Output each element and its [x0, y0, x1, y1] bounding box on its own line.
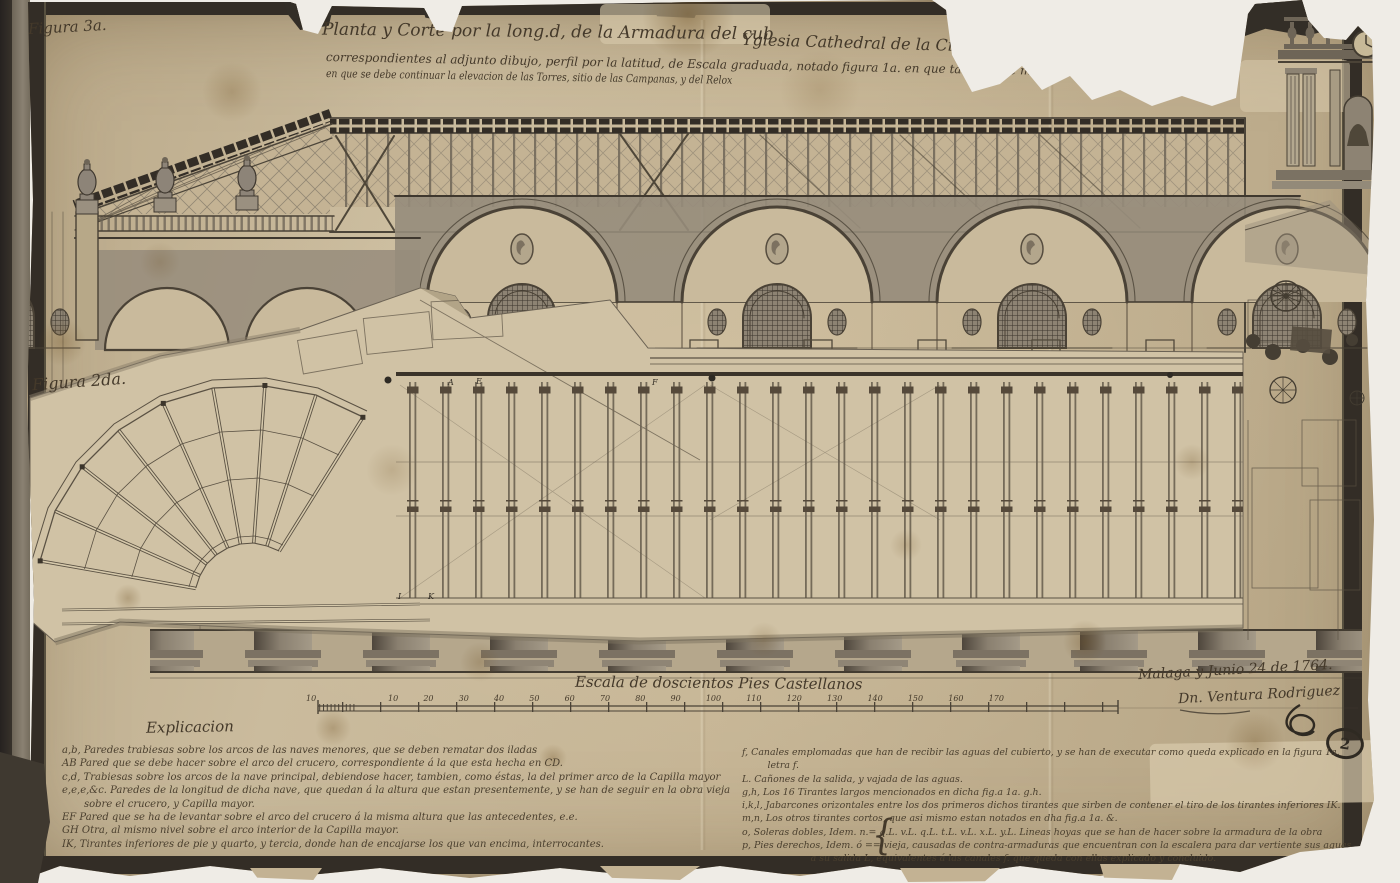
- legend-line: f, Canales emplomadas que han de recibir…: [742, 746, 1351, 759]
- tick-label: 130: [827, 694, 842, 703]
- legend-line: a su salida L, equivalentes á las canale…: [742, 852, 1351, 865]
- tick-label: 160: [948, 694, 963, 703]
- tick-label: 90: [671, 694, 681, 703]
- paper-fragment: [600, 866, 700, 880]
- paper-fragment: [250, 868, 322, 880]
- signature-flourish: [1180, 705, 1314, 735]
- plan-letter-k: K: [428, 592, 434, 601]
- legend-line: c,d, Trabiesas sobre los arcos de la nav…: [62, 771, 730, 784]
- plan-letter-e: E: [476, 377, 482, 386]
- legend-line: e,e,e,&c. Paredes de la longitud de dich…: [62, 784, 730, 797]
- legend-line: IK, Tirantes inferiores de pie y quarto,…: [62, 838, 730, 851]
- legend-line: m,n, Los otros tirantes cortos, que asi …: [742, 812, 1351, 825]
- legend-line: sobre el crucero, y Capilla mayor.: [62, 798, 730, 811]
- tick-label: 170: [989, 694, 1004, 703]
- legend-line: o, Soleras dobles, Idem. n.= q.L. v.L. q…: [742, 826, 1351, 839]
- legend-line: g,h, Los 16 Tirantes largos mencionados …: [742, 786, 1351, 799]
- scanned-architectural-drawing: Figura 3a. Planta y Corte por la long.d,…: [0, 0, 1400, 883]
- legend-brace: {: [872, 812, 894, 860]
- tick-label: 30: [459, 694, 469, 703]
- legend-line: letra f.: [742, 759, 1351, 772]
- tick-label: 60: [565, 694, 575, 703]
- scale-lead-tick: 10: [306, 694, 316, 703]
- paper-fragment: [900, 868, 1000, 882]
- scale-caption: Escala de doscientos Pies Castellanos: [575, 673, 863, 694]
- tick-label: 150: [908, 694, 923, 703]
- tick-label: 140: [867, 694, 882, 703]
- tower-elevation: [1245, 17, 1379, 275]
- legend-heading: Explicacion: [146, 717, 234, 737]
- tick-label: 70: [600, 694, 610, 703]
- legend-line: EF Pared que se ha de levantar sobre el …: [62, 811, 730, 824]
- legend-line: GH Otra, al mismo nivel sobre el arco in…: [62, 824, 730, 837]
- legend-line: L. Cañones de la salida, y vajada de las…: [742, 773, 1351, 786]
- tick-label: 120: [787, 694, 802, 703]
- plan-letter-a: A: [448, 378, 454, 387]
- legend-left-column: a,b, Paredes trabiesas sobre los arcos d…: [62, 744, 730, 851]
- paper-sheet: Figura 3a. Planta y Corte por la long.d,…: [0, 0, 1400, 883]
- tower-columns: [1285, 68, 1340, 166]
- tick-label: 40: [494, 694, 504, 703]
- tick-label: 10: [388, 694, 398, 703]
- plan-letter-i: I: [398, 592, 401, 601]
- paper-fragment: [1100, 864, 1180, 880]
- tick-label: 80: [635, 694, 645, 703]
- legend-line: AB Pared que se debe hacer sobre el arco…: [62, 757, 730, 770]
- legend-line: p, Pies derechos, Idem. ó == vieja, caus…: [742, 839, 1351, 852]
- scale-tick-labels: 10 20 30 40 50 60 70 80 90 100 110 120 1…: [388, 694, 1004, 703]
- legend-right-column: f, Canales emplomadas que han de recibir…: [742, 746, 1351, 866]
- legend-line: a,b, Paredes trabiesas sobre los arcos d…: [62, 744, 730, 757]
- legend-line: i,k,l, Jabarcones orizontales entre los …: [742, 799, 1351, 812]
- tick-label: 50: [529, 694, 539, 703]
- plan-letter-f: F: [652, 378, 658, 387]
- mount-edge-mid: [12, 0, 30, 866]
- tick-label: 110: [746, 694, 761, 703]
- tick-label: 20: [423, 694, 433, 703]
- tick-label: 100: [706, 694, 721, 703]
